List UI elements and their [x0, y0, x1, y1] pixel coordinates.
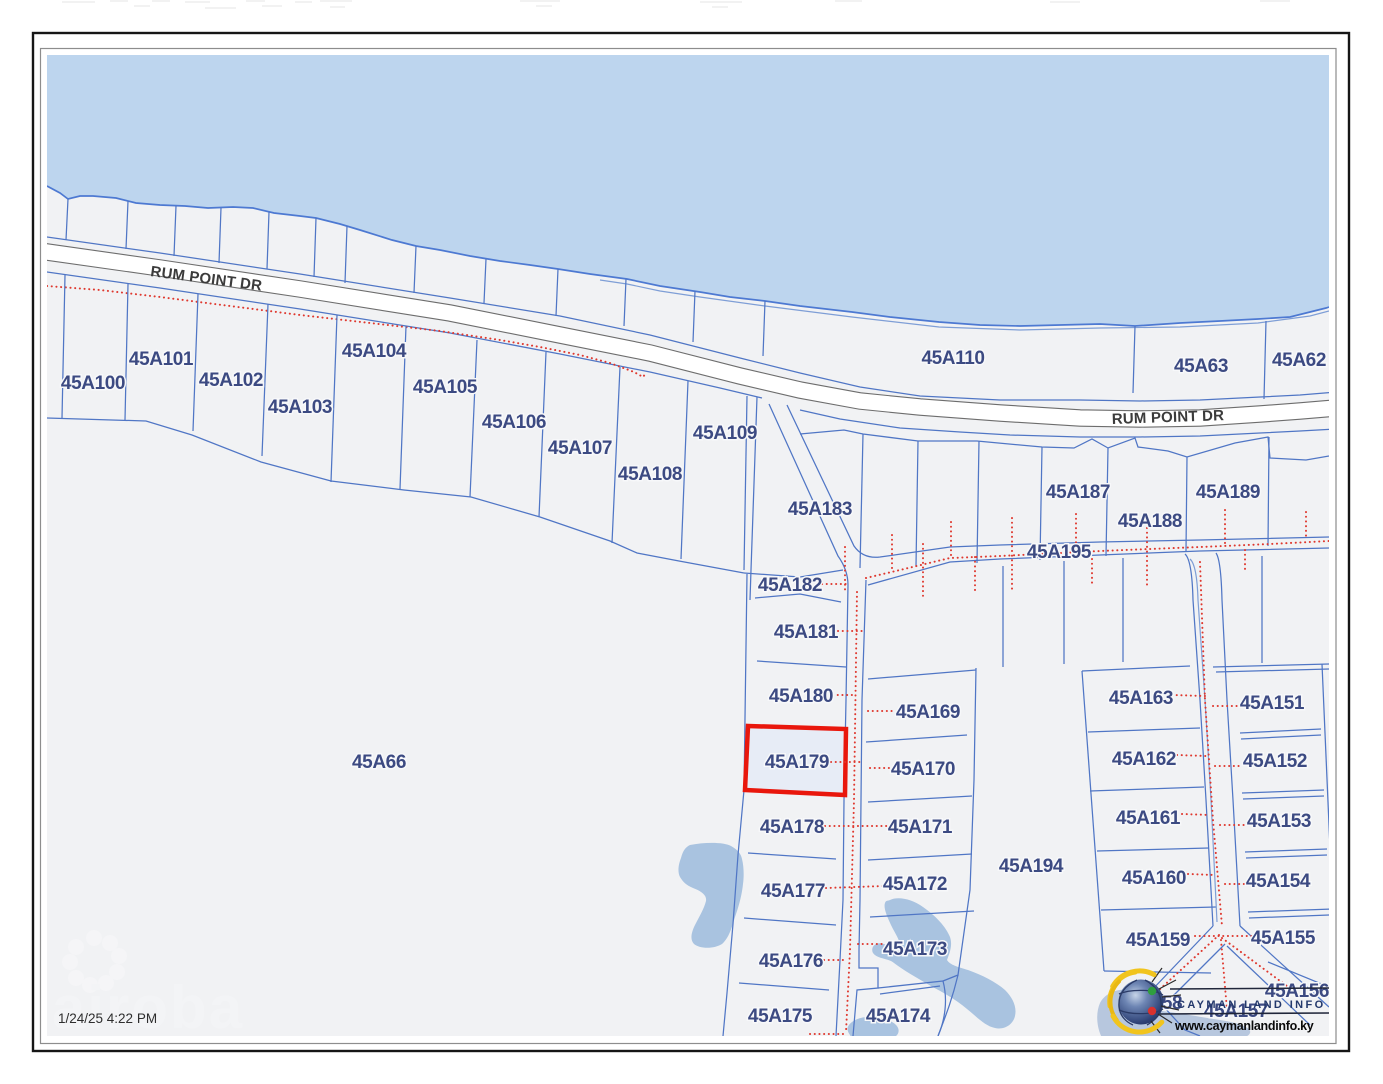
- svg-text:45A155: 45A155: [1251, 928, 1316, 949]
- svg-text:45A107: 45A107: [548, 438, 612, 459]
- svg-text:45A151: 45A151: [1240, 693, 1305, 714]
- svg-text:45A189: 45A189: [1196, 482, 1260, 503]
- svg-text:45A187: 45A187: [1046, 482, 1110, 503]
- svg-text:45A101: 45A101: [129, 349, 194, 370]
- svg-text:45A154: 45A154: [1246, 871, 1311, 892]
- svg-text:45A188: 45A188: [1118, 511, 1182, 532]
- svg-text:45A180: 45A180: [769, 686, 833, 707]
- svg-text:45A194: 45A194: [999, 856, 1064, 877]
- svg-text:45A104: 45A104: [342, 341, 407, 362]
- svg-text:45A176: 45A176: [759, 951, 823, 972]
- svg-text:45A173: 45A173: [883, 939, 947, 960]
- svg-text:airoba: airoba: [52, 974, 244, 1041]
- svg-text:45A177: 45A177: [761, 881, 825, 902]
- svg-text:45A66: 45A66: [352, 752, 406, 773]
- svg-text:45A172: 45A172: [883, 874, 947, 895]
- svg-text:45A170: 45A170: [891, 759, 955, 780]
- svg-text:45A175: 45A175: [748, 1006, 813, 1027]
- svg-text:45A169: 45A169: [896, 702, 960, 723]
- svg-text:45A174: 45A174: [866, 1006, 931, 1027]
- svg-text:45A178: 45A178: [760, 817, 824, 838]
- svg-text:45A160: 45A160: [1122, 868, 1186, 889]
- svg-text:45A179: 45A179: [765, 752, 829, 773]
- svg-text:45A182: 45A182: [758, 575, 822, 596]
- svg-text:45A63: 45A63: [1174, 356, 1228, 377]
- svg-text:45A108: 45A108: [618, 464, 682, 485]
- svg-text:45A195: 45A195: [1027, 542, 1092, 563]
- svg-text:45A105: 45A105: [413, 377, 478, 398]
- svg-text:45A159: 45A159: [1126, 930, 1190, 951]
- svg-text:45A62: 45A62: [1272, 350, 1326, 371]
- svg-text:45A183: 45A183: [788, 499, 852, 520]
- svg-text:45A171: 45A171: [888, 817, 953, 838]
- svg-text:CAYMAN LAND INFO: CAYMAN LAND INFO: [1177, 999, 1326, 1011]
- svg-text:www.caymanlandinfo.ky: www.caymanlandinfo.ky: [1174, 1019, 1314, 1033]
- svg-text:1/24/25 4:22 PM: 1/24/25 4:22 PM: [58, 1011, 157, 1026]
- svg-text:45A102: 45A102: [199, 370, 263, 391]
- svg-text:45A100: 45A100: [61, 373, 125, 394]
- svg-text:45A181: 45A181: [774, 622, 839, 643]
- svg-text:45A106: 45A106: [482, 412, 546, 433]
- svg-text:45A163: 45A163: [1109, 688, 1173, 709]
- svg-text:45A109: 45A109: [693, 423, 757, 444]
- svg-text:45A152: 45A152: [1243, 751, 1307, 772]
- svg-text:45A103: 45A103: [268, 397, 332, 418]
- svg-text:45A162: 45A162: [1112, 749, 1176, 770]
- svg-text:45A110: 45A110: [921, 348, 984, 369]
- svg-text:45A161: 45A161: [1116, 808, 1181, 829]
- svg-text:45A153: 45A153: [1247, 811, 1311, 832]
